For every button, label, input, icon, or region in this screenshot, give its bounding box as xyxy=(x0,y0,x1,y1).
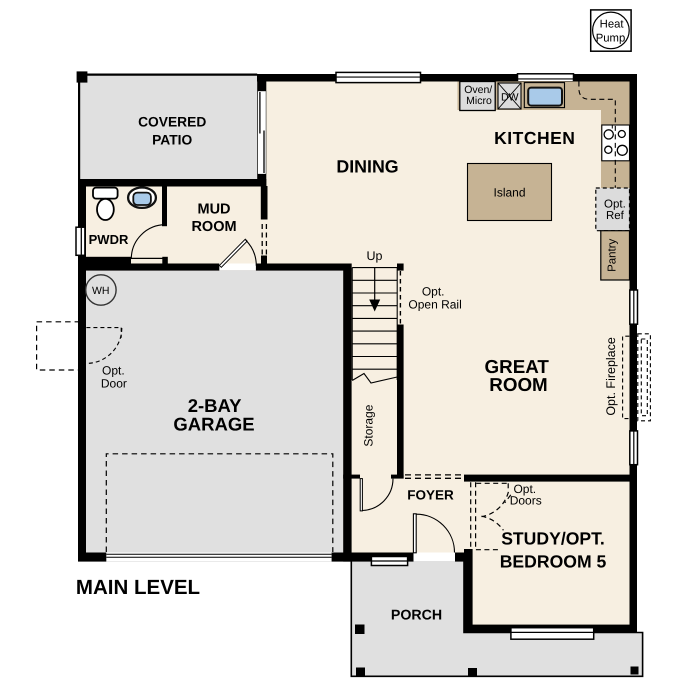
svg-text:MAIN LEVEL: MAIN LEVEL xyxy=(76,576,200,599)
svg-text:Pantry: Pantry xyxy=(607,238,619,271)
svg-text:Micro: Micro xyxy=(466,95,492,107)
svg-text:BEDROOM 5: BEDROOM 5 xyxy=(500,551,607,571)
svg-text:MUD: MUD xyxy=(197,202,230,218)
svg-text:Opt.: Opt. xyxy=(422,284,445,298)
svg-text:Heat: Heat xyxy=(600,19,625,31)
svg-text:Open Rail: Open Rail xyxy=(408,298,461,312)
svg-text:Ref: Ref xyxy=(606,210,625,222)
svg-text:Opt.: Opt. xyxy=(102,364,125,378)
svg-text:Pump: Pump xyxy=(596,33,626,45)
svg-text:GARAGE: GARAGE xyxy=(173,413,254,434)
svg-text:STUDY/OPT.: STUDY/OPT. xyxy=(501,529,605,549)
svg-text:DW: DW xyxy=(501,91,519,103)
svg-text:ROOM: ROOM xyxy=(489,374,547,395)
svg-text:PATIO: PATIO xyxy=(152,132,192,147)
svg-text:PWDR: PWDR xyxy=(89,232,129,247)
svg-text:Island: Island xyxy=(493,185,525,199)
svg-text:Opt.: Opt. xyxy=(604,199,626,211)
svg-text:Doors: Doors xyxy=(510,493,542,507)
svg-text:WH: WH xyxy=(92,285,110,297)
svg-text:FOYER: FOYER xyxy=(407,487,454,502)
svg-text:Storage: Storage xyxy=(362,404,376,446)
svg-text:Opt. Fireplace: Opt. Fireplace xyxy=(604,337,618,416)
svg-text:KITCHEN: KITCHEN xyxy=(494,128,575,148)
svg-text:ROOM: ROOM xyxy=(191,219,236,235)
svg-text:DINING: DINING xyxy=(336,157,398,177)
svg-text:Door: Door xyxy=(101,377,127,391)
svg-text:COVERED: COVERED xyxy=(138,114,206,129)
svg-text:PORCH: PORCH xyxy=(391,608,442,624)
svg-text:Up: Up xyxy=(367,249,383,263)
